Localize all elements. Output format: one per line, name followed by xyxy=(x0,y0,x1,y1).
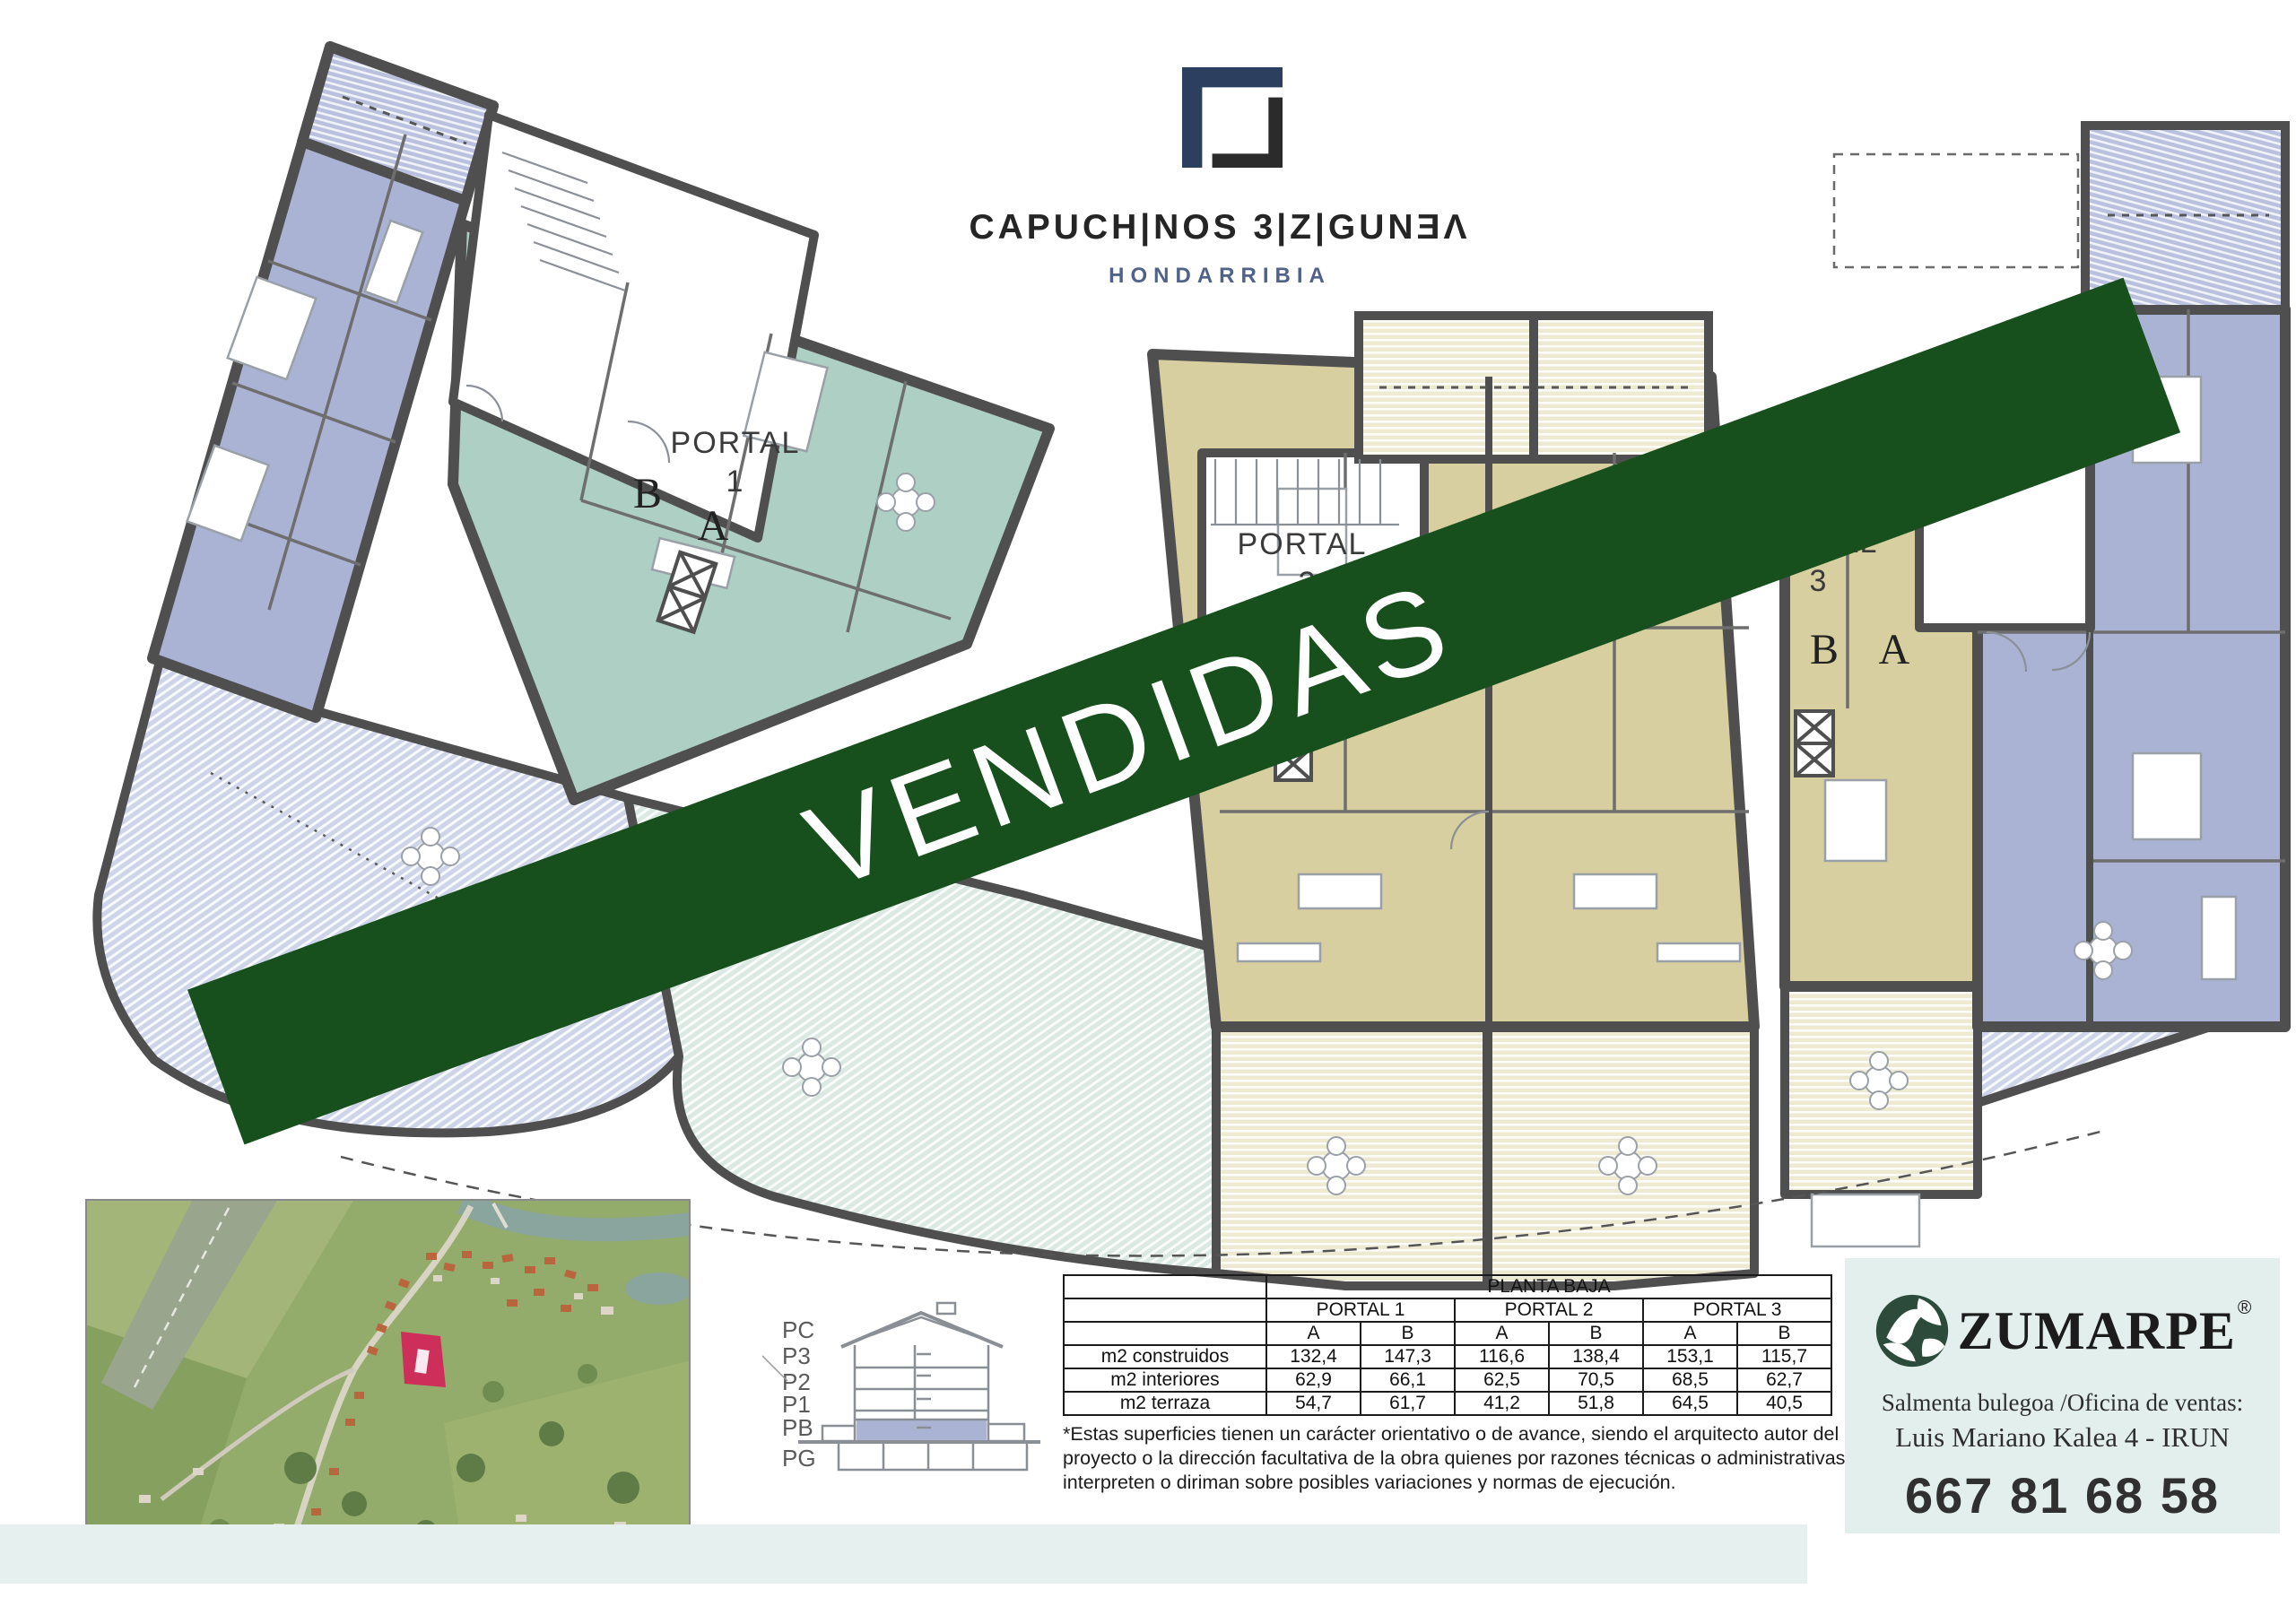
table-row: m2 terraza 54,7 61,7 41,2 51,8 64,5 40,5 xyxy=(1064,1392,1831,1415)
table-row: m2 interiores 62,9 66,1 62,5 70,5 68,5 6… xyxy=(1064,1368,1831,1392)
table-row: m2 construidos 132,4 147,3 116,6 138,4 1… xyxy=(1064,1345,1831,1368)
cell: 116,6 xyxy=(1455,1345,1549,1368)
cell: 62,7 xyxy=(1737,1368,1831,1392)
portal1-number: 1 xyxy=(726,465,745,499)
table-title: PLANTA BAJA xyxy=(1266,1275,1831,1298)
cell: 66,1 xyxy=(1361,1368,1455,1392)
table-corner-cell xyxy=(1064,1275,1266,1298)
unit-header: A xyxy=(1455,1322,1549,1345)
roof-outline-dashed xyxy=(1834,154,2078,267)
zumarpe-tree-icon xyxy=(1874,1292,1951,1369)
portal1-unit-b: B xyxy=(633,470,662,517)
portal1-header: PORTAL 1 xyxy=(1266,1298,1455,1322)
portal3-number: 3 xyxy=(1810,564,1829,598)
aerial-photo xyxy=(85,1199,691,1549)
building-section: PC P3 P2 P1 PB PG xyxy=(762,1291,1063,1529)
floor-label-p3: P3 xyxy=(782,1342,811,1369)
terrace-portal2-a xyxy=(1216,1027,1487,1286)
cell: 70,5 xyxy=(1549,1368,1643,1392)
surface-table: PLANTA BAJA PORTAL 1 PORTAL 2 PORTAL 3 A… xyxy=(1063,1274,1832,1416)
cell: 51,8 xyxy=(1549,1392,1643,1415)
vendor-phone: 667 81 68 58 xyxy=(1905,1466,2220,1524)
unit-header: B xyxy=(1549,1322,1643,1345)
vendor-office-line: Salmenta bulegoa /Oficina de ventas: xyxy=(1882,1389,2243,1417)
registered-trademark: ® xyxy=(2238,1298,2251,1319)
portal3-header: PORTAL 3 xyxy=(1643,1298,1831,1322)
section-highlight-pb xyxy=(857,1420,987,1440)
cell: 61,7 xyxy=(1361,1392,1455,1415)
floor-labels: PC P3 P2 P1 PB PG xyxy=(782,1316,816,1472)
row-label: m2 terraza xyxy=(1064,1392,1266,1415)
cell: 62,9 xyxy=(1266,1368,1361,1392)
vendor-name: ZUMARPE xyxy=(1958,1300,2236,1362)
surfaces-footnote: *Estas superficies tienen un carácter or… xyxy=(1063,1422,1848,1495)
vendor-card: ZUMARPE ® Salmenta bulegoa /Oficina de v… xyxy=(1845,1258,2280,1533)
cell: 68,5 xyxy=(1643,1368,1737,1392)
footer-band xyxy=(0,1524,1807,1584)
cell: 62,5 xyxy=(1455,1368,1549,1392)
portal1-unit-a: A xyxy=(698,502,729,550)
cell: 153,1 xyxy=(1643,1345,1737,1368)
portal3-unit-a: A xyxy=(1879,626,1910,673)
unit-header: B xyxy=(1361,1322,1455,1345)
vendor-address-line: Luis Mariano Kalea 4 - IRUN xyxy=(1895,1421,2230,1454)
cell: 54,7 xyxy=(1266,1392,1361,1415)
floor-label-pc: PC xyxy=(782,1316,814,1343)
cell: 138,4 xyxy=(1549,1345,1643,1368)
floor-label-pb: PB xyxy=(782,1414,813,1441)
row-label: m2 interiores xyxy=(1064,1368,1266,1392)
section-drawing xyxy=(798,1303,1040,1470)
cell: 132,4 xyxy=(1266,1345,1361,1368)
portal2-label: PORTAL xyxy=(1238,527,1368,561)
portal1-label: PORTAL xyxy=(671,426,801,460)
cell: 115,7 xyxy=(1737,1345,1831,1368)
vendor-logo-row: ZUMARPE ® xyxy=(1874,1292,2252,1369)
row-label: m2 construidos xyxy=(1064,1345,1266,1368)
portal3-unit-b: B xyxy=(1810,626,1839,673)
cell: 147,3 xyxy=(1361,1345,1455,1368)
unit-header: B xyxy=(1737,1322,1831,1345)
portal2-header: PORTAL 2 xyxy=(1455,1298,1643,1322)
cell: 40,5 xyxy=(1737,1392,1831,1415)
unit-header: A xyxy=(1266,1322,1361,1345)
floor-label-pg: PG xyxy=(782,1445,816,1472)
unit-header: A xyxy=(1643,1322,1737,1345)
cell: 64,5 xyxy=(1643,1392,1737,1415)
cell: 41,2 xyxy=(1455,1392,1549,1415)
floor-plan: PORTAL 1 B A PORTAL 2 PORTAL 3 B A VENDI… xyxy=(0,0,2296,1309)
